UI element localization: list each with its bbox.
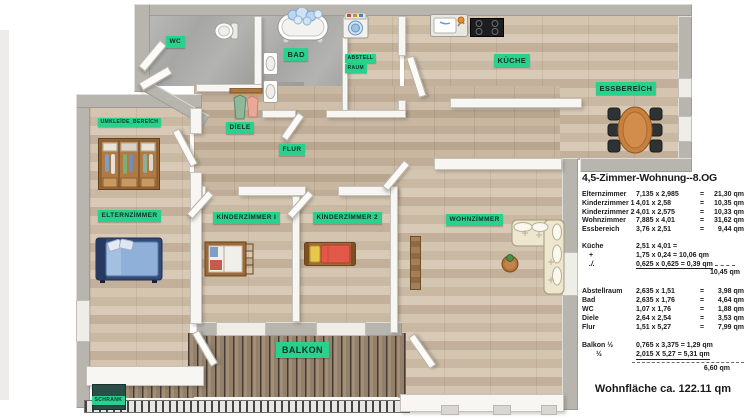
room-label-wohnzimmer: WOHNZİMMER <box>446 214 503 226</box>
row-equals: = <box>696 217 708 224</box>
floorplan-image: WC BAD ABSTELL RAUM KÜCHE ESSBEREİCH DİE… <box>0 0 747 420</box>
row-equals: = <box>696 297 708 304</box>
row-area: 10,33 qm <box>708 209 744 216</box>
row-equals: = <box>696 324 708 331</box>
row-equals: = <box>696 306 708 313</box>
radiator <box>410 236 421 290</box>
row-dims: 4,01 x 2,58 <box>636 200 696 207</box>
row-name: Diele <box>582 315 636 322</box>
room-label-kinderzimmer1: KİNDERZİMMER I <box>213 212 280 224</box>
window-essbereich-1 <box>678 78 692 98</box>
row-dims: 2,015 X 5,27 = 5,31 qm <box>636 351 710 360</box>
table-row: WC 1,07 x 1,76 = 1,88 qm <box>582 306 744 315</box>
table-row-balkon: ½ 2,015 X 5,27 = 5,31 qm <box>582 351 744 360</box>
wall-bad-flur-b <box>326 110 406 118</box>
balkon-floor-left-strip <box>124 384 194 398</box>
washbasin-icon <box>263 80 278 103</box>
row-dims: 7,885 x 4,01 <box>636 217 696 224</box>
room-label-flur: FLUR <box>279 144 305 156</box>
wall-kz2-wohnzimmer <box>390 186 398 333</box>
wall-left <box>76 94 90 408</box>
row-name: Essbereich <box>582 226 636 233</box>
room-label-elternzimmer: ELTERNZİMMER <box>98 210 161 222</box>
window-kinderzimmer2 <box>316 322 366 336</box>
left-edge-shade <box>0 30 9 400</box>
dash-suffix <box>715 261 735 266</box>
window-essbereich-2 <box>678 116 692 142</box>
room-label-bad: BAD <box>284 48 308 61</box>
row-dims: 2,64 x 2,54 <box>636 315 696 322</box>
row-dims: 2,51 x 4,01 = <box>636 243 677 250</box>
side-table-icon <box>500 252 520 274</box>
wall-kueche-flur <box>450 98 582 108</box>
room-label-wc: WC <box>166 36 185 48</box>
washbasin-icon <box>263 52 278 75</box>
table-row-kueche: Küche 2,51 x 4,01 = <box>582 243 744 252</box>
kueche-total: 10,45 qm <box>582 269 744 278</box>
wall-abstell-kueche-a <box>398 16 406 56</box>
table-row: Flur 1,51 x 5,27 = 7,99 qm <box>582 324 744 333</box>
window-wall-elternzimmer-bottom <box>86 366 204 386</box>
row-area: 3,53 qm <box>708 315 744 322</box>
pillar <box>541 405 557 415</box>
row-name: WC <box>582 306 636 313</box>
table-row: Diele 2,64 x 2,54 = 3,53 qm <box>582 315 744 324</box>
row-equals: = <box>696 200 708 207</box>
row-name: Elternzimmer <box>582 191 636 198</box>
row-dims: 2,635 x 1,51 <box>636 288 696 295</box>
single-bed-icon <box>304 240 356 268</box>
wall-wohnzimmer-top <box>434 158 562 170</box>
row-name: Wohnzimmer <box>582 217 636 224</box>
row-name: Flur <box>582 324 636 331</box>
row-equals: = <box>696 209 708 216</box>
room-label-abstell-1: ABSTELL <box>345 54 376 63</box>
table-row: Kinderzimmer 1 4,01 x 2,58 = 10,35 qm <box>582 200 744 209</box>
table-row-kueche: ./. 0,625 x 0,625 = 0,39 qm <box>582 261 744 270</box>
table-row-balkon: Balkon ½ 0,765 x 3,375 = 1,29 qm <box>582 342 744 351</box>
wall-bad-flur-a <box>262 110 296 118</box>
window-kinderzimmer1 <box>216 322 266 336</box>
pillar <box>493 405 511 415</box>
row-area: 9,44 qm <box>708 226 744 233</box>
row-name: Bad <box>582 297 636 304</box>
table-row: Elternzimmer 7,135 x 2,985 = 21,30 qm <box>582 191 744 200</box>
row-area: 21,30 qm <box>708 191 744 198</box>
row-area: 4,64 qm <box>708 297 744 304</box>
wall-flur-bedrooms-b <box>238 186 306 196</box>
room-label-kueche: KÜCHE <box>494 54 530 67</box>
row-name: Kinderzimmer 1 <box>582 200 636 207</box>
row-dims: 1,75 x 0,24 = 10,06 qm <box>636 252 709 259</box>
washing-machine-icon <box>342 12 369 39</box>
row-area: 7,99 qm <box>708 324 744 331</box>
balkon-railing <box>84 400 410 413</box>
row-name: Abstellraum <box>582 288 636 295</box>
window-wall-wohnzimmer-bottom <box>400 394 564 412</box>
row-equals: = <box>696 191 708 198</box>
row-equals: = <box>696 315 708 322</box>
panel-title: 4,5-Zimmer-Wohnung--8.OG <box>582 172 744 184</box>
row-name: Küche <box>582 243 636 250</box>
row-name: Balkon ½ <box>582 342 636 349</box>
toilet-icon <box>214 20 240 42</box>
room-label-kinderzimmer2: KİNDERZİMMER 2 <box>313 212 382 224</box>
row-dims: 1,07 x 1,76 <box>636 306 696 313</box>
row-area: 3,98 qm <box>708 288 744 295</box>
row-dims: 3,76 x 2,51 <box>636 226 696 233</box>
table-row: Abstellraum 2,635 x 1,51 = 3,98 qm <box>582 288 744 297</box>
wall-essbereich-bottom <box>580 158 692 172</box>
row-name: Kinderzimmer 2 <box>582 209 636 216</box>
double-bed-icon <box>94 234 164 284</box>
table-row: Wohnzimmer 7,885 x 4,01 = 31,62 qm <box>582 217 744 226</box>
table-row: Bad 2,635 x 1,76 = 4,64 qm <box>582 297 744 306</box>
room-label-umkleide: UMKLEİDE_BEREİCH <box>98 118 161 127</box>
row-dims: 0,765 x 3,375 = 1,29 qm <box>636 342 713 349</box>
room-label-schrank: SCHRANK <box>92 396 125 405</box>
stove-icon <box>470 18 504 37</box>
room-label-balkon: BALKON <box>276 342 329 358</box>
row-equals: = <box>696 226 708 233</box>
row-area: 10,35 qm <box>708 200 744 207</box>
table-row: Essbereich 3,76 x 2,51 = 9,44 qm <box>582 226 744 235</box>
wall-top <box>134 4 692 16</box>
wall-wc-bad <box>254 16 262 86</box>
wall-eltern-right-b <box>190 172 202 324</box>
coat-rack-icon <box>228 88 264 122</box>
row-name: ./. <box>582 261 636 268</box>
row-name: ½ <box>582 351 636 358</box>
total-living-area: Wohnfläche ca. 122.11 qm <box>582 383 744 395</box>
balkon-dashed-divider <box>632 362 744 363</box>
row-dims: 1,51 x 5,27 <box>636 324 696 331</box>
row-dims: 4,01 x 2,575 <box>636 209 696 216</box>
wall-eltern-right-a <box>190 108 202 134</box>
row-dims: 2,635 x 1,76 <box>636 297 696 304</box>
row-dims: 0,625 x 0,625 = 0,39 qm <box>636 261 713 270</box>
row-name: + <box>582 252 636 259</box>
kitchen-sink-icon <box>430 12 468 39</box>
dining-table-icon <box>606 104 664 156</box>
row-area: 31,62 qm <box>708 217 744 224</box>
pillar <box>441 405 459 415</box>
bunk-bed-icon <box>204 240 254 278</box>
row-area: 1,88 qm <box>708 306 744 313</box>
balkon-total: 6,60 qm <box>582 365 744 374</box>
room-label-abstell-2: RAUM <box>345 64 367 73</box>
room-label-diele: DİELE <box>226 122 254 134</box>
window-left-wall <box>76 300 90 342</box>
bathtub-icon <box>274 8 332 44</box>
row-dims: 7,135 x 2,985 <box>636 191 696 198</box>
wardrobe-icon <box>98 138 160 190</box>
table-row-kueche: + 1,75 x 0,24 = 10,06 qm <box>582 252 744 261</box>
table-row: Kinderzimmer 2 4,01 x 2,575 = 10,33 qm <box>582 209 744 218</box>
measurement-panel: 4,5-Zimmer-Wohnung--8.OG Elternzimmer 7,… <box>582 172 744 395</box>
row-equals: = <box>696 288 708 295</box>
room-label-essbereich: ESSBEREİCH <box>596 82 656 95</box>
